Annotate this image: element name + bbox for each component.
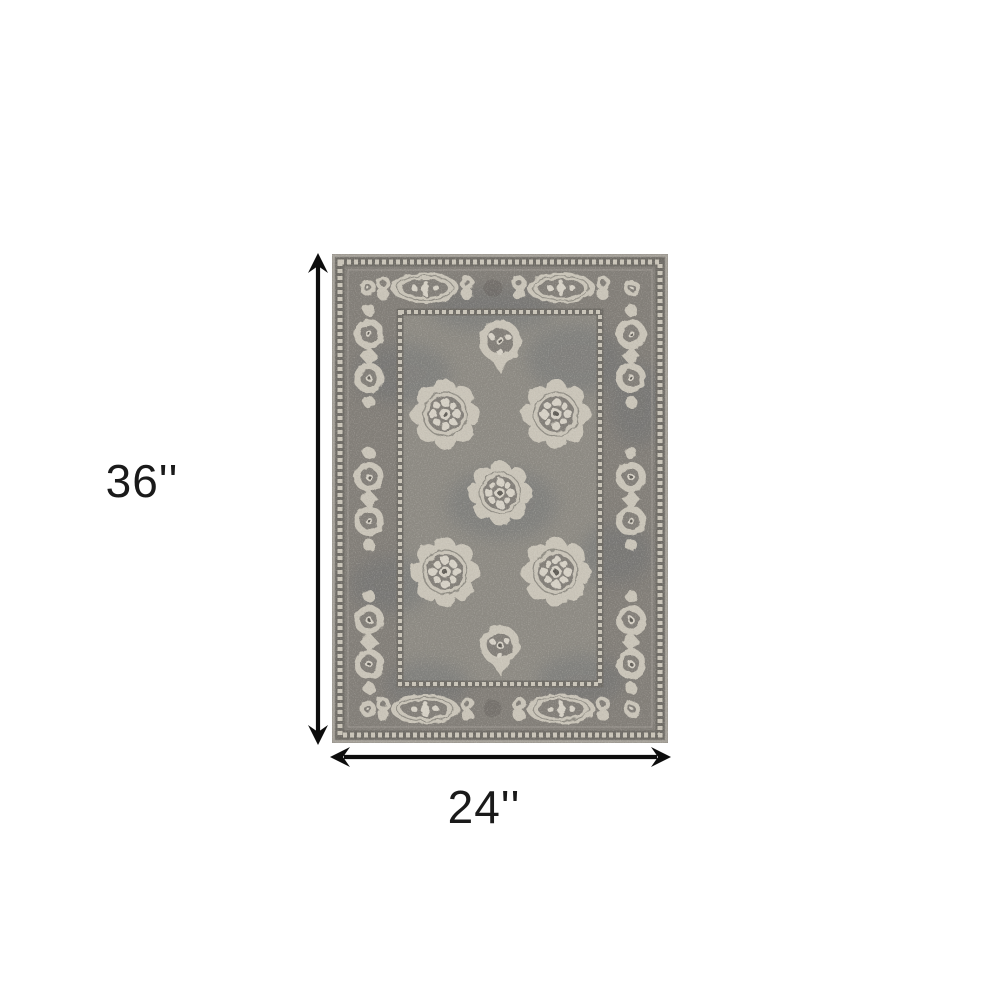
arrow-right-icon xyxy=(651,747,671,767)
arrow-left-icon xyxy=(330,747,350,767)
width-dimension xyxy=(330,747,671,767)
rug-image xyxy=(332,254,668,743)
width-label: 24'' xyxy=(399,784,569,830)
arrow-up-icon xyxy=(308,253,328,273)
product-dimension-diagram: 36'' 24'' xyxy=(0,0,1000,1000)
height-dimension xyxy=(308,253,328,745)
arrow-down-icon xyxy=(308,725,328,745)
height-label: 36'' xyxy=(58,458,226,504)
rug-illustration xyxy=(332,254,668,743)
